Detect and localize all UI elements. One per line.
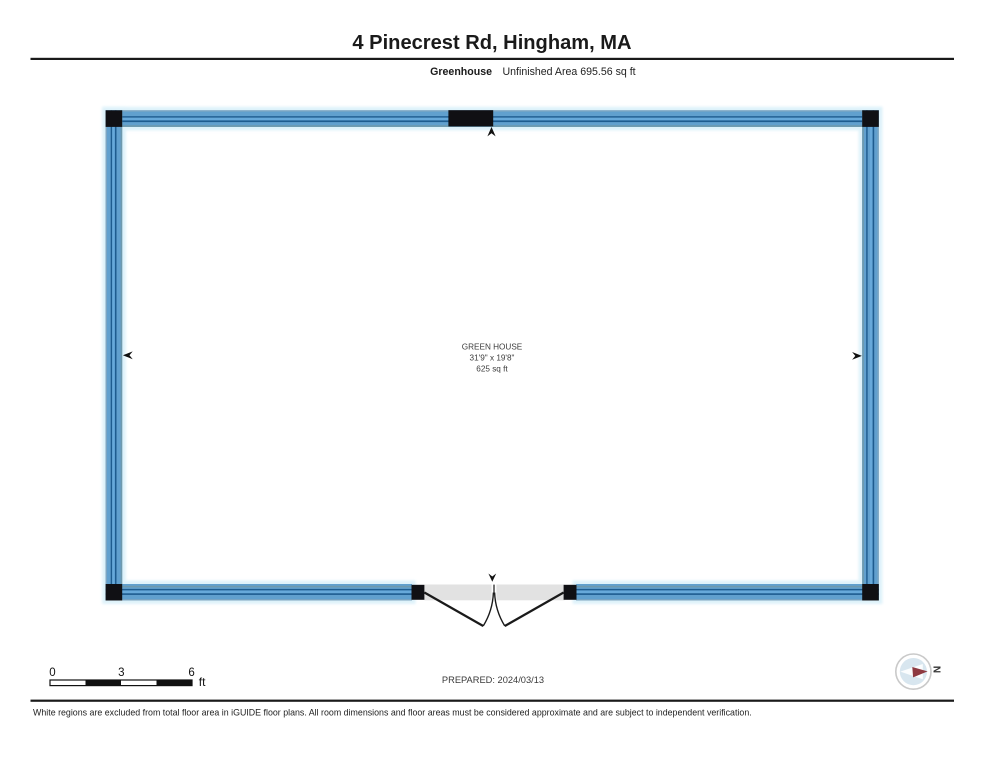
- svg-text:ft: ft: [199, 675, 206, 689]
- svg-text:GREEN HOUSE: GREEN HOUSE: [462, 343, 523, 352]
- svg-text:6: 6: [188, 667, 194, 679]
- svg-text:31'9" x 19'8": 31'9" x 19'8": [470, 354, 515, 363]
- svg-text:White regions are excluded fro: White regions are excluded from total fl…: [33, 708, 752, 718]
- svg-text:Greenhouse: Greenhouse: [430, 66, 492, 78]
- svg-text:PREPARED: 2024/03/13: PREPARED: 2024/03/13: [442, 675, 544, 685]
- svg-text:4 Pinecrest Rd, Hingham, MA: 4 Pinecrest Rd, Hingham, MA: [352, 32, 631, 54]
- svg-text:N: N: [931, 666, 942, 673]
- svg-text:0: 0: [49, 667, 55, 679]
- svg-text:3: 3: [118, 667, 124, 679]
- svg-text:625 sq ft: 625 sq ft: [476, 365, 508, 374]
- svg-text:Unfinished Area 695.56 sq ft: Unfinished Area 695.56 sq ft: [503, 66, 636, 78]
